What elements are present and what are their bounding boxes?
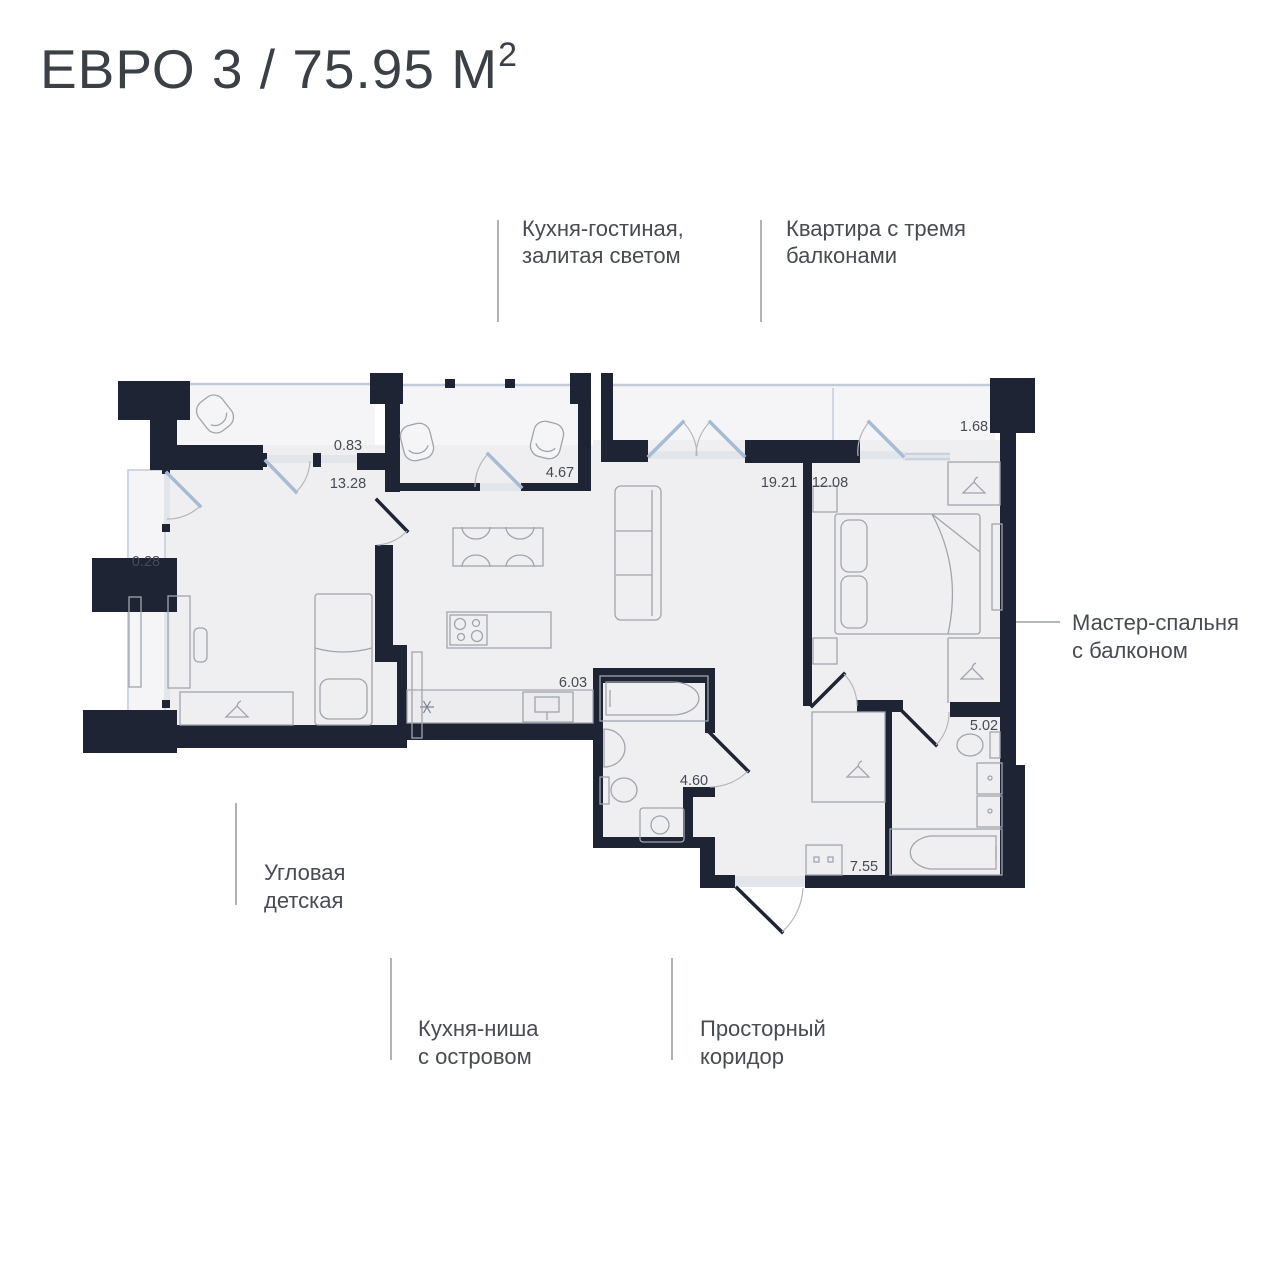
callout-text: с балконом: [1072, 638, 1188, 663]
exterior-mask: [585, 848, 700, 890]
area-kitchen-niche: 6.03: [559, 675, 587, 691]
floorplan-canvas: ЕВРО 3 / 75.95 М2: [0, 0, 1280, 1280]
callout-text: детская: [264, 888, 343, 913]
entry-door-leaf: [737, 888, 782, 932]
callout-three-balconies: Квартира с тремя балконами: [761, 216, 966, 322]
callout-text: Кухня-ниша: [418, 1016, 539, 1041]
callout-text: с островом: [418, 1044, 532, 1069]
area-master-bathroom: 5.02: [970, 718, 998, 734]
right-rooms-floor: [593, 440, 1005, 878]
callout-text: Мастер-спальня: [1072, 610, 1239, 635]
area-balcony-topleft: 0.83: [334, 438, 362, 454]
callout-corner-children: Угловая детская: [236, 803, 345, 913]
callout-master-bedroom: Мастер-спальня с балконом: [1016, 610, 1239, 663]
page-title: ЕВРО 3 / 75.95 М2: [40, 36, 518, 100]
callout-text: Кухня-гостиная,: [522, 216, 684, 241]
callout-text: Квартира с тремя: [786, 216, 966, 241]
callout-text: Просторный: [700, 1016, 826, 1041]
kitchen-counter: [407, 690, 593, 723]
area-children-room: 13.28: [330, 476, 366, 492]
area-kitchen-living: 19.21: [761, 475, 797, 491]
area-master-bedroom: 12.08: [812, 475, 848, 491]
callout-kitchen-niche: Кухня-ниша с островом: [391, 958, 539, 1069]
area-bathroom: 4.60: [680, 773, 708, 789]
callout-text: Угловая: [264, 860, 345, 885]
title-superscript: 2: [498, 36, 518, 74]
area-balcony-right: 1.68: [960, 419, 988, 435]
callout-corridor: Просторный коридор: [672, 958, 826, 1069]
area-balcony-left: 0.28: [132, 554, 160, 570]
callout-text: коридор: [700, 1044, 784, 1069]
callout-text: залитая светом: [522, 243, 681, 268]
callout-kitchen-living: Кухня-гостиная, залитая светом: [498, 216, 684, 322]
floorplan-page: ЕВРО 3 / 75.95 М2: [0, 0, 1280, 1280]
area-balcony-middle: 4.67: [546, 465, 574, 481]
area-corridor: 7.55: [850, 859, 878, 875]
callout-text: балконами: [786, 243, 897, 268]
